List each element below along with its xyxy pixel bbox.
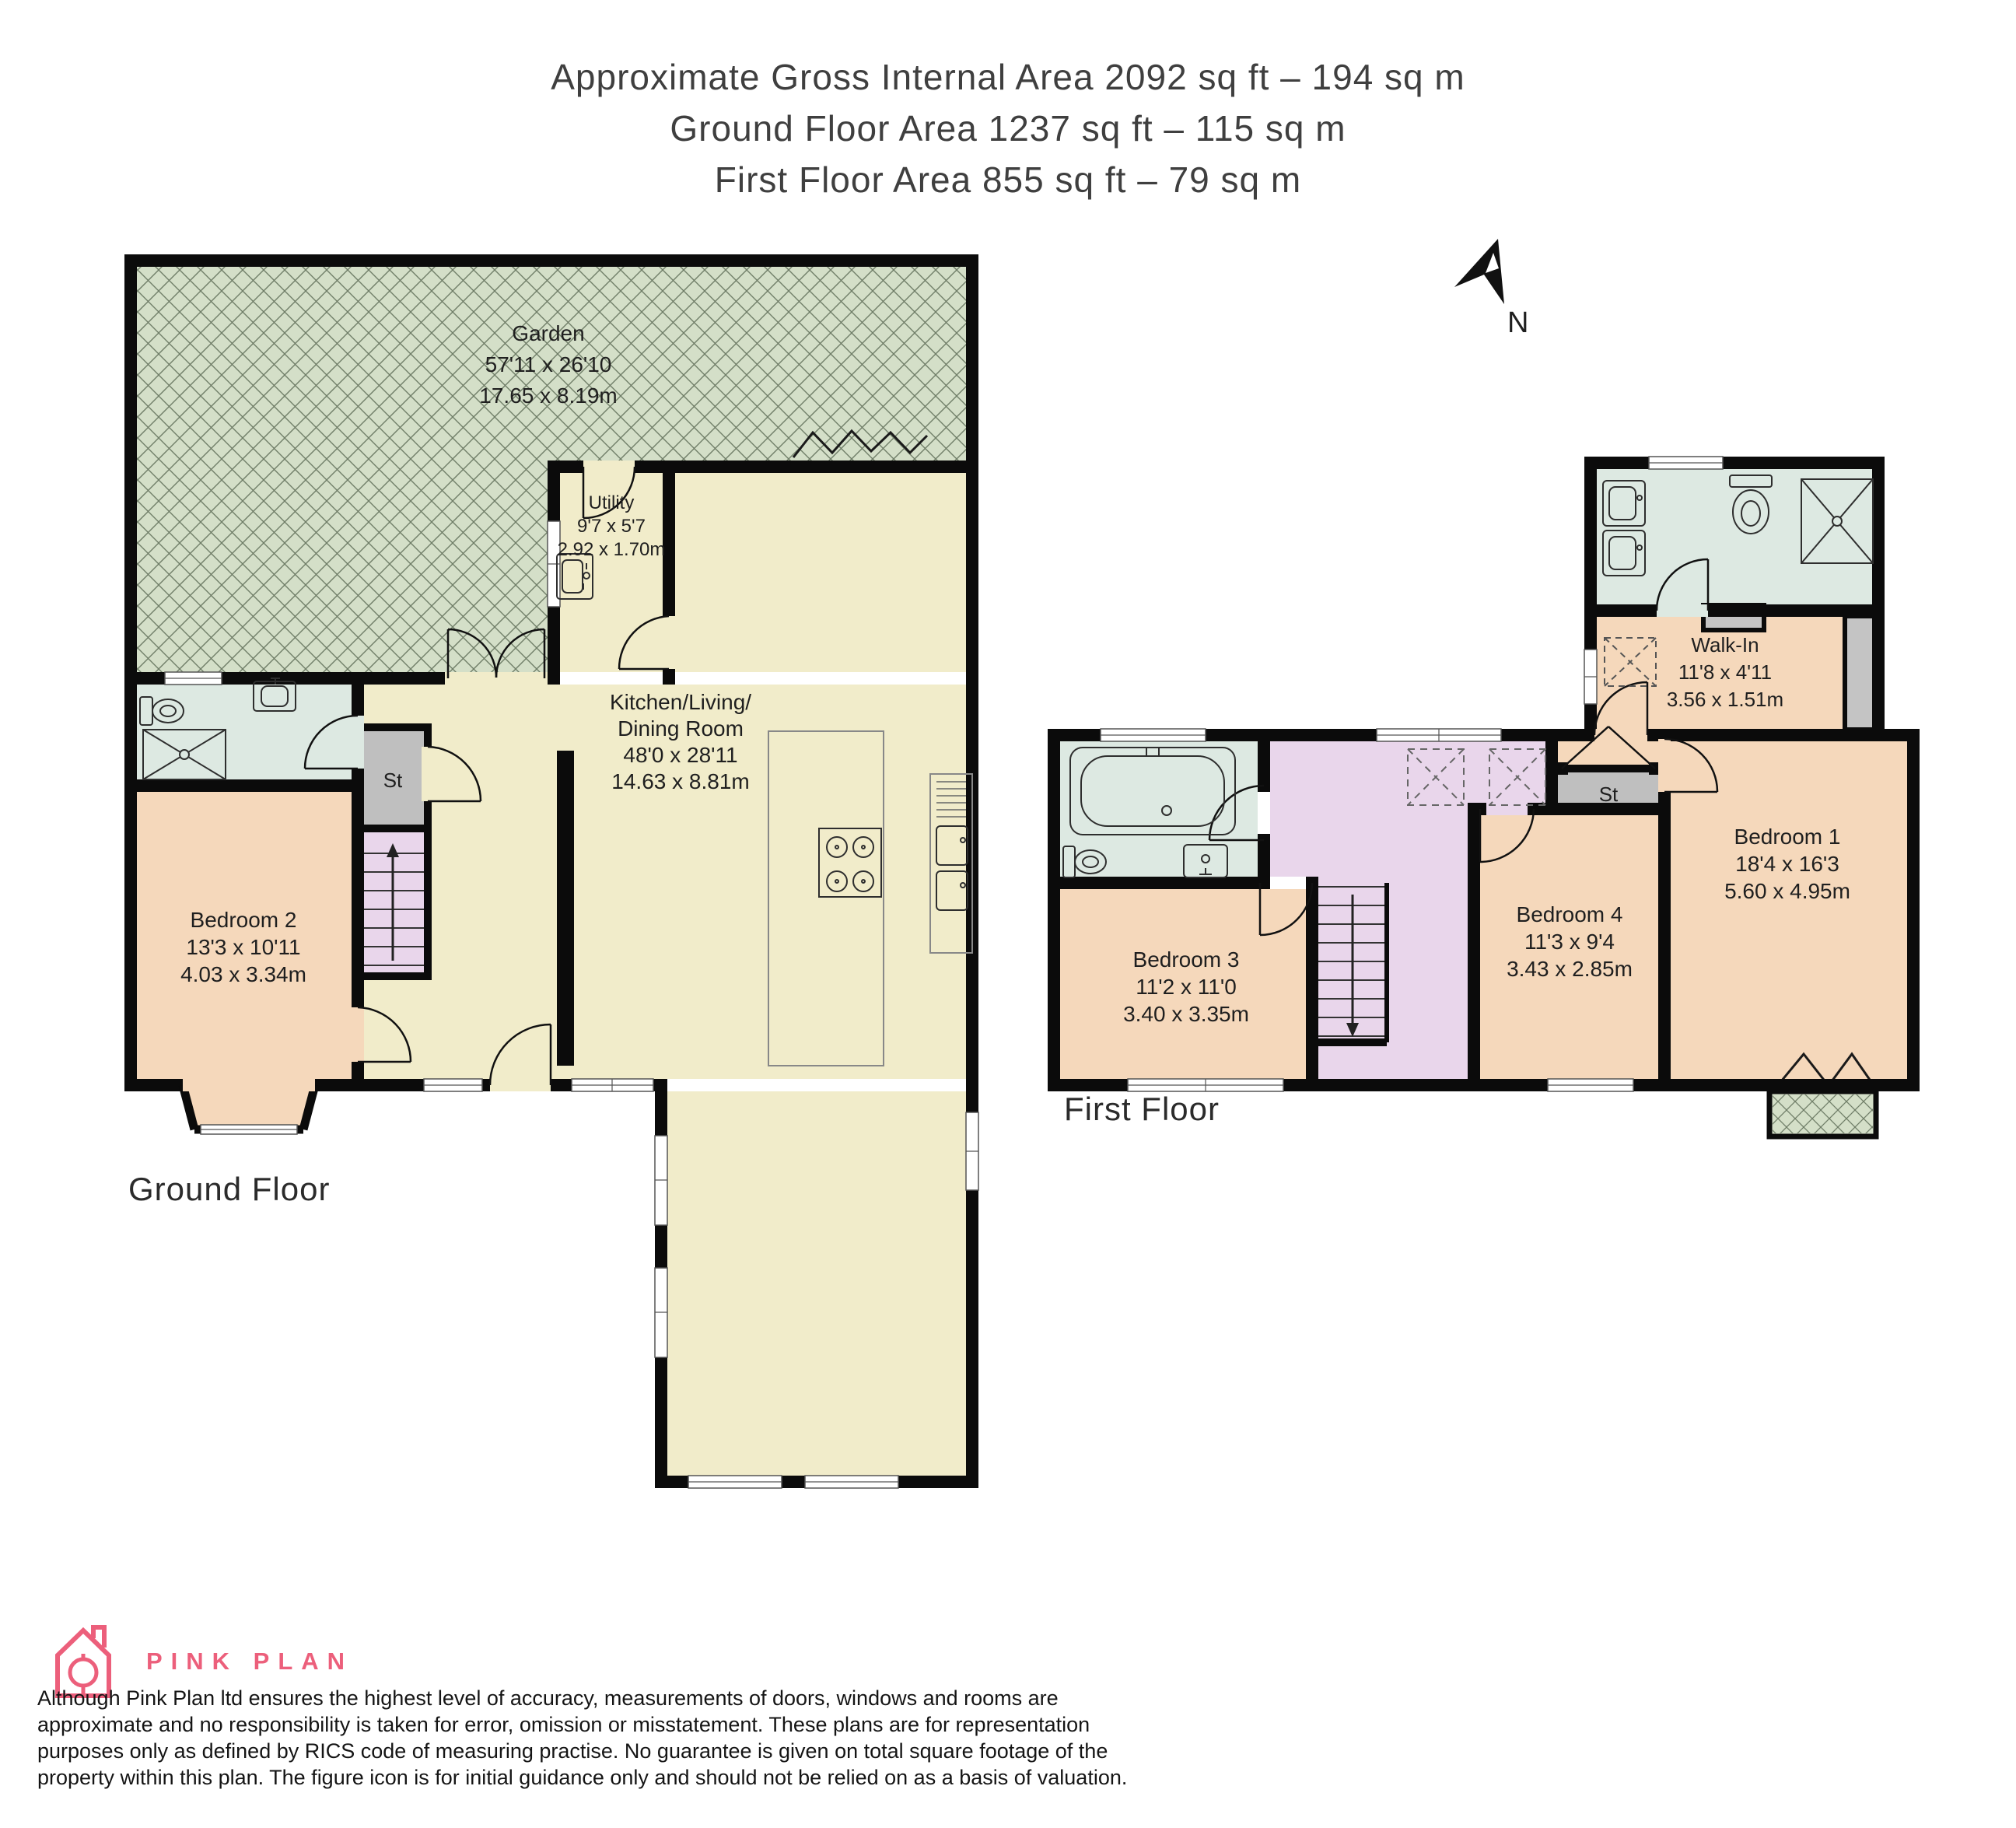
logo-text: PINK PLAN	[146, 1648, 353, 1676]
kitchen-label-1: Kitchen/Living/	[610, 690, 751, 714]
header-line-total-area: Approximate Gross Internal Area 2092 sq …	[0, 51, 2016, 103]
kitchen-extension-area	[667, 1091, 966, 1476]
header-line-first-floor-area: First Floor Area 855 sq ft – 79 sq m	[0, 154, 2016, 205]
store-first-label: St	[1599, 783, 1619, 806]
kitchen-divider-wall	[557, 751, 574, 1066]
stairs-ground	[358, 828, 428, 976]
utility-dims-metric: 2.92 x 1.70m	[558, 539, 666, 560]
header-line-ground-floor-area: Ground Floor Area 1237 sq ft – 115 sq m	[0, 103, 2016, 154]
utility-label: Utility	[589, 492, 635, 513]
bedroom2-label: Bedroom 2	[191, 908, 297, 932]
disclaimer-line-4: property within this plan. The figure ic…	[37, 1764, 1173, 1791]
bedroom1-dims-imperial: 18'4 x 16'3	[1735, 852, 1839, 876]
kitchen-top-area	[675, 473, 966, 672]
utility-dims-imperial: 9'7 x 5'7	[577, 516, 646, 537]
walkin-label: Walk-In	[1691, 633, 1759, 657]
first-floor-plan: Walk-In 11'8 x 4'11 3.56 x 1.51m Bedroom…	[1042, 451, 1937, 1151]
header: Approximate Gross Internal Area 2092 sq …	[0, 51, 2016, 205]
garden-label: Garden	[512, 321, 584, 345]
bedroom1-label: Bedroom 1	[1734, 825, 1841, 849]
bedroom2-dims-metric: 4.03 x 3.34m	[180, 962, 306, 986]
kitchen-dims-imperial: 48'0 x 28'11	[623, 743, 737, 767]
ground-floor-label: Ground Floor	[128, 1171, 330, 1208]
disclaimer-line-3: purposes only as defined by RICS code of…	[37, 1738, 1173, 1764]
first-floor-label: First Floor	[1064, 1091, 1220, 1128]
disclaimer: Although Pink Plan ltd ensures the highe…	[37, 1685, 1173, 1791]
disclaimer-line-1: Although Pink Plan ltd ensures the highe…	[37, 1685, 1173, 1711]
north-arrow-icon	[1454, 239, 1504, 304]
bedroom3-dims-imperial: 11'2 x 11'0	[1136, 975, 1237, 999]
garden-dims-metric: 17.65 x 8.19m	[479, 383, 617, 408]
walkin-dims-imperial: 11'8 x 4'11	[1678, 660, 1772, 684]
ground-floor-plan: Garden 57'11 x 26'10 17.65 x 8.19m Utili…	[117, 249, 988, 1494]
bedroom3-label: Bedroom 3	[1133, 947, 1240, 972]
walkin-dims-metric: 3.56 x 1.51m	[1667, 688, 1783, 711]
disclaimer-line-2: approximate and no responsibility is tak…	[37, 1711, 1173, 1738]
bedroom4-dims-metric: 3.43 x 2.85m	[1507, 957, 1633, 981]
bedroom4-label: Bedroom 4	[1517, 902, 1623, 926]
north-compass: N	[1431, 229, 1548, 346]
garden-dims-imperial: 57'11 x 26'10	[485, 352, 612, 376]
bedroom3-dims-metric: 3.40 x 3.35m	[1123, 1002, 1249, 1026]
store-ground-label: St	[383, 769, 403, 792]
corridor-area	[1558, 741, 1658, 769]
ensuite-area	[1597, 469, 1872, 604]
kitchen-dims-metric: 14.63 x 8.81m	[611, 769, 749, 793]
ground-room-fills	[131, 261, 972, 1476]
bedroom4-dims-imperial: 11'3 x 9'4	[1524, 930, 1615, 954]
kitchen-label-2: Dining Room	[618, 716, 744, 741]
bedroom2-dims-imperial: 13'3 x 10'11	[186, 935, 300, 959]
stairwell-area	[1318, 877, 1468, 1079]
bedroom2-bay	[183, 1085, 315, 1129]
bedroom1-dims-metric: 5.60 x 4.95m	[1724, 879, 1850, 903]
north-label: N	[1507, 306, 1528, 339]
